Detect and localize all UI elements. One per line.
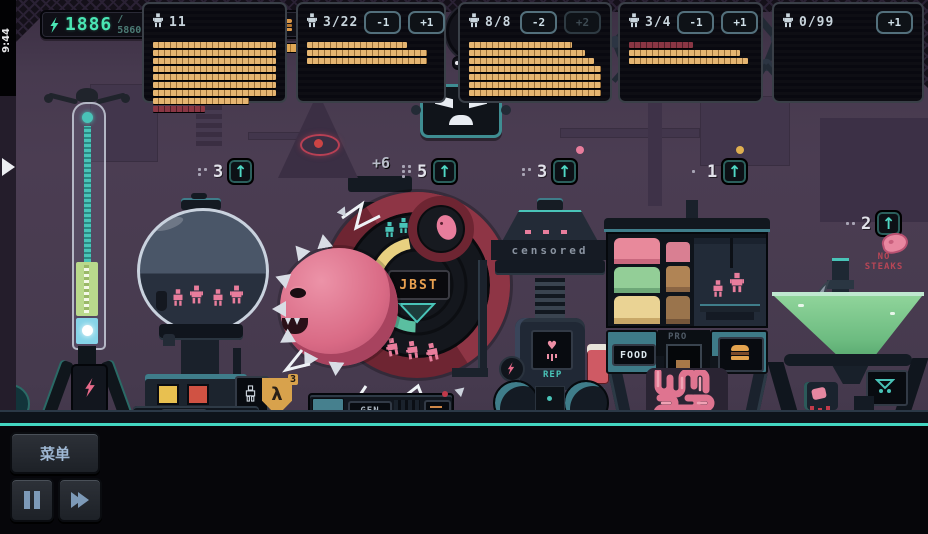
unit-bars <box>629 42 752 64</box>
level-pip <box>198 173 201 176</box>
unit-add-button[interactable]: +1 <box>721 11 758 34</box>
unit-bar <box>469 50 585 56</box>
upgrade-count: 2 <box>861 214 871 234</box>
person-icon <box>153 13 163 32</box>
menu-button[interactable]: 菜单 <box>10 432 100 474</box>
glass-shine <box>153 214 185 234</box>
pod-person <box>230 285 243 304</box>
robot-left-bolt <box>411 105 421 115</box>
level-pip <box>528 168 531 171</box>
upgrade-button[interactable]: ↑ <box>227 158 254 185</box>
tesla-head <box>76 88 98 102</box>
upgrade-button[interactable]: ↑ <box>431 158 458 185</box>
unit-bar <box>469 74 601 80</box>
person-icon <box>307 13 317 32</box>
system-clock: 9:44 <box>1 28 12 53</box>
fast-forward-button[interactable] <box>58 478 102 522</box>
food-cabinet <box>606 232 768 328</box>
rep-censored-machine[interactable]: censored ♥ REP <box>487 198 613 424</box>
unit-panel-generator: 3/22 -1+1 <box>296 2 446 103</box>
unit-bar <box>153 66 276 72</box>
censored-label: censored <box>512 244 589 257</box>
unit-bar <box>629 42 693 48</box>
tesla-blue-cell <box>76 318 98 344</box>
pink-bolt-icon <box>84 378 96 397</box>
unit-bar <box>307 50 427 56</box>
food-label: FOOD <box>620 350 648 361</box>
wall-machinery <box>820 118 928 222</box>
food-left-panel: FOOD <box>606 330 658 374</box>
unit-bar <box>469 42 572 48</box>
meat-slab-tan <box>614 296 660 324</box>
unit-count: 8/8 <box>485 15 511 30</box>
unit-panel-pods: 11 <box>142 2 287 103</box>
pro-label: PRO <box>668 332 687 342</box>
unit-add-button[interactable]: +1 <box>876 11 913 34</box>
food-chamber <box>694 238 766 326</box>
food-roof <box>604 218 770 232</box>
pod-fishbowl-machine[interactable]: POD <box>133 198 273 424</box>
unit-count: 11 <box>169 15 187 30</box>
chamber-person <box>730 272 744 293</box>
bowl-lid-handle <box>191 193 207 199</box>
level-pip <box>204 168 207 171</box>
tesla-stand-neck <box>78 346 96 366</box>
meat-slab-pink <box>614 238 660 264</box>
censored-band: censored <box>491 240 609 260</box>
unit-add-button[interactable]: +1 <box>408 11 445 34</box>
mid-slab-pink <box>666 242 690 262</box>
chamber-person <box>712 280 724 297</box>
unit-bar <box>153 74 276 80</box>
eye-icon <box>300 134 340 156</box>
burger-bun-bottom <box>731 356 749 360</box>
level-pips <box>846 222 856 225</box>
glass-bowl <box>137 208 269 334</box>
rep-body: ♥ REP <box>515 318 585 390</box>
unit-bar <box>153 58 276 64</box>
wall-panel <box>700 96 790 166</box>
unit-bars <box>307 42 435 64</box>
robot-right-bolt <box>501 105 511 115</box>
pink-indicator-dot <box>576 146 584 154</box>
level-pip <box>846 222 849 225</box>
tesla-green-cell <box>76 262 98 316</box>
play-indicator-icon <box>2 158 15 176</box>
person-icon <box>629 13 639 32</box>
unit-count: 3/22 <box>323 15 358 30</box>
chamber-platform <box>700 304 760 312</box>
level-pip <box>402 170 405 173</box>
person-icon <box>783 13 793 32</box>
wall-pipe <box>648 86 662 206</box>
unit-bar <box>153 82 276 88</box>
flask <box>156 291 167 311</box>
bottom-bar <box>0 426 928 534</box>
unit-bar <box>469 66 601 72</box>
tesla-glass-tube <box>72 102 106 350</box>
pod-body <box>145 374 247 408</box>
pod-person <box>172 289 184 306</box>
unit-panel-grinder: 0/99 +1 <box>772 2 924 103</box>
level-pips <box>692 170 702 173</box>
upgrade-button[interactable]: ↑ <box>551 158 578 185</box>
red-window <box>187 384 209 405</box>
upgrade-count: 3 <box>537 162 547 182</box>
pod-person <box>190 285 203 304</box>
person-icon <box>469 13 479 32</box>
upgrade-count: 3 <box>213 162 223 182</box>
yellow-window <box>157 384 179 405</box>
unit-remove-button[interactable]: -1 <box>364 11 401 34</box>
funnel-grinder-machine[interactable] <box>770 258 928 426</box>
unit-bar <box>153 106 205 112</box>
robot-frown-mouth <box>449 115 473 125</box>
unit-bars <box>153 42 276 112</box>
upgrade-label-generator: 5 ↑ <box>402 158 458 185</box>
unit-bars <box>469 42 601 96</box>
eye-pupil <box>314 139 323 148</box>
generator-cable-elbow <box>452 368 488 377</box>
pause-icon <box>24 491 30 509</box>
pod-person <box>212 289 224 306</box>
level-pip <box>408 170 411 173</box>
rep-bolt-port <box>499 356 525 382</box>
pause-button[interactable] <box>10 478 54 522</box>
upgrade-label-rep: 3 ↑ <box>522 158 578 185</box>
level-pip <box>692 170 695 173</box>
rep-base-plate <box>495 260 605 275</box>
level-pip <box>198 168 201 171</box>
person-outline-icon <box>245 385 256 402</box>
unit-bar <box>153 50 276 56</box>
level-pips <box>198 168 208 176</box>
unit-bar <box>469 82 601 88</box>
rep-dome <box>491 210 609 240</box>
level-pip <box>408 165 411 168</box>
upgrade-label-food: 1 ↑ <box>692 158 748 185</box>
unit-bar <box>629 58 748 64</box>
upgrade-button[interactable]: ↑ <box>721 158 748 185</box>
level-pip <box>522 173 525 176</box>
skull-emblem-icon <box>875 378 895 396</box>
tesla-energy-panel <box>71 364 108 414</box>
upgrade-count: 5 <box>417 162 427 182</box>
heart-icon: ♥ <box>548 340 556 352</box>
level-pips <box>522 168 532 176</box>
rep-top-knob <box>537 198 563 211</box>
pink-bolt-icon <box>507 362 515 375</box>
unit-count: 0/99 <box>799 15 834 30</box>
chamber-rod <box>730 238 733 268</box>
system-status-strip: 9:44 <box>0 0 16 96</box>
unit-remove-button[interactable]: -2 <box>520 11 557 34</box>
unit-count: 3/4 <box>645 15 671 30</box>
chamber-platform-base <box>706 312 754 320</box>
unit-bar <box>469 58 594 64</box>
wall-conduit <box>560 128 700 138</box>
upgrade-count: 1 <box>707 162 717 182</box>
tesla-coil-machine[interactable] <box>50 88 126 424</box>
unit-panel-food: 3/4 -1+1 <box>618 2 763 103</box>
unit-bar <box>307 42 407 48</box>
mid-slab-brown <box>666 266 690 292</box>
rep-spring-neck <box>535 278 565 318</box>
meat-slab-green <box>614 267 660 293</box>
frame-crossbar <box>784 354 912 366</box>
left-wall-pillar <box>0 96 16 410</box>
energy-bolt-icon <box>49 17 60 33</box>
burger-bun-top <box>731 345 749 351</box>
unit-bar <box>153 98 249 104</box>
yellow-indicator-dot <box>736 146 744 154</box>
level-pip <box>522 168 525 171</box>
upgrade-label-pool: 3 ↑ <box>198 158 254 185</box>
unit-bar <box>307 58 427 64</box>
funnel-rim <box>772 292 924 296</box>
level-pip <box>852 222 855 225</box>
meat-chunk <box>811 387 827 401</box>
level-pip <box>402 175 405 178</box>
unit-bar <box>153 42 276 48</box>
mid-slab-brown <box>666 296 690 324</box>
tesla-coil <box>84 126 91 262</box>
rep-label: REP <box>543 370 562 380</box>
gen-light <box>442 391 448 397</box>
perched-robot <box>163 334 175 346</box>
level-pips <box>402 165 412 178</box>
unit-add-button: +2 <box>564 11 601 34</box>
food-chimney <box>686 200 698 218</box>
energy-value: 1886 <box>65 14 112 35</box>
generator-cable <box>478 260 487 376</box>
dispensed-item <box>676 360 690 368</box>
funnel-liquid <box>774 296 922 360</box>
heart-display: ♥ <box>531 330 573 370</box>
generator-wheel-machine[interactable]: JBST <box>280 190 508 426</box>
unit-bar <box>629 50 740 56</box>
menu-button-label: 菜单 <box>40 443 70 464</box>
small-wheel <box>408 196 474 262</box>
wheel-creature <box>435 213 459 241</box>
food-machine[interactable]: FOOD PRO <box>602 216 774 428</box>
burger-patty <box>731 352 749 355</box>
unit-bar <box>153 90 276 96</box>
level-pip <box>402 165 405 168</box>
pod-neck <box>181 340 219 376</box>
unit-remove-button[interactable]: -1 <box>677 11 714 34</box>
unit-bar <box>469 90 601 96</box>
unit-panel-rep: 8/8 -2+2 <box>458 2 612 103</box>
game-screen: 1886 / 5860 25 / 30 38 / 50 DAY 17 4 i <box>0 0 928 534</box>
burger-screen <box>718 337 764 372</box>
tesla-coil-top <box>82 112 93 123</box>
bonus-label: +6 <box>372 154 390 172</box>
